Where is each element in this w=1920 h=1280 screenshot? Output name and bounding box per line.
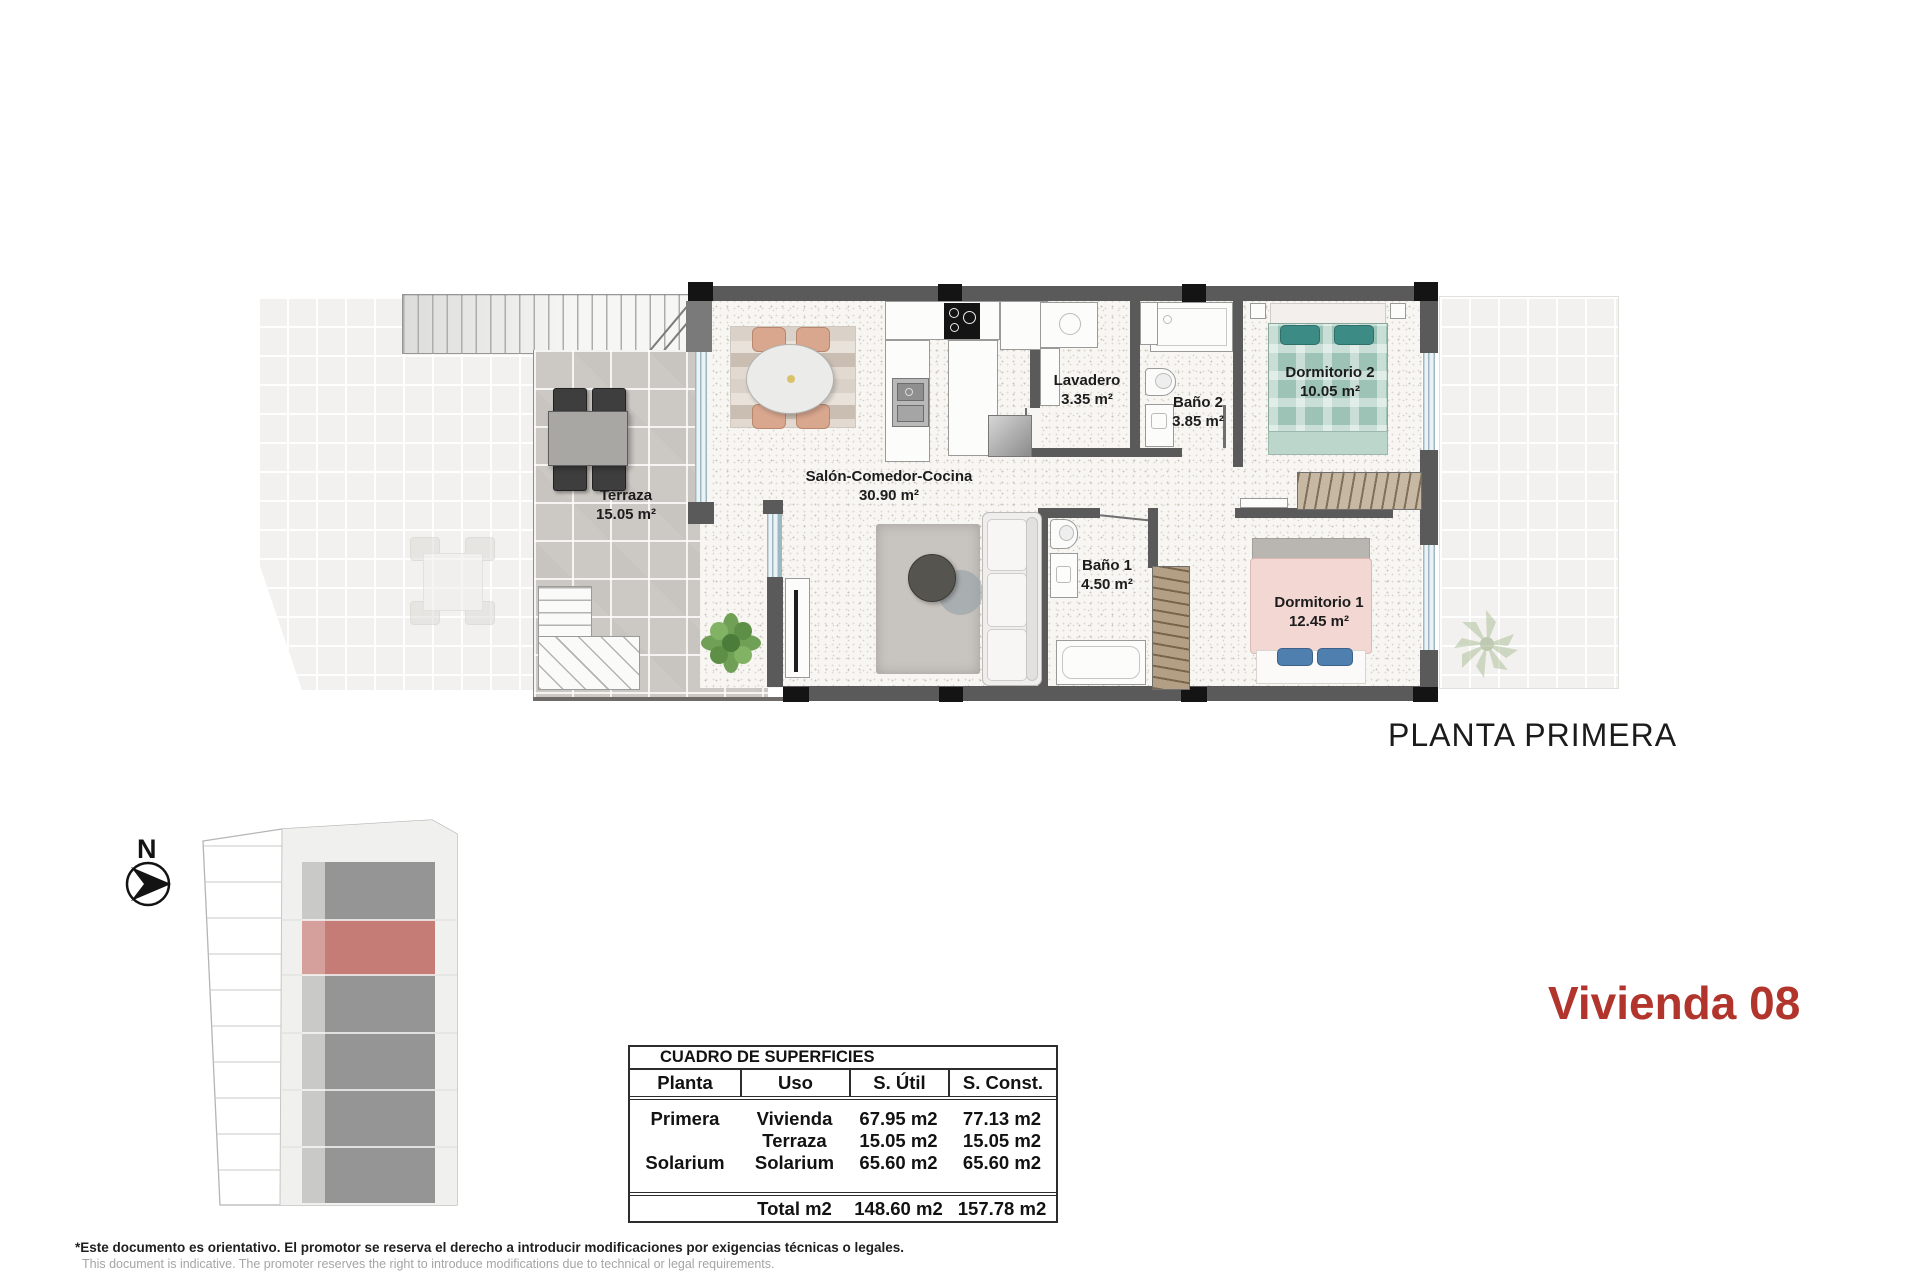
wall-top (688, 286, 1438, 301)
room-name: Baño 2 (1172, 393, 1224, 412)
window-salon (695, 352, 707, 502)
cell-util: 65.60 m2 (849, 1152, 948, 1174)
surface-table-body: Primera Vivienda 67.95 m2 77.13 m2 Terra… (630, 1100, 1056, 1196)
room-label-bano2: Baño 2 3.85 m² (1172, 393, 1224, 431)
room-label-lavadero: Lavadero 3.35 m² (1054, 371, 1121, 409)
cell-uso: Vivienda (740, 1108, 849, 1130)
wall-tv (767, 577, 783, 687)
cell-const: 77.13 m2 (948, 1108, 1056, 1130)
room-label-salon: Salón-Comedor-Cocina 30.90 m² (806, 467, 973, 505)
highlighted-unit (302, 920, 325, 975)
nightstand (1390, 303, 1406, 319)
window-dormitorio1 (1423, 545, 1435, 650)
disclaimer-en: This document is indicative. The promote… (82, 1257, 774, 1271)
plan-title: PLANTA PRIMERA (1388, 717, 1677, 754)
window-dormitorio2 (1423, 353, 1435, 450)
wall-bano1-right (1148, 508, 1158, 568)
door-glass-entry (767, 510, 782, 577)
table-row: Primera Vivienda 67.95 m2 77.13 m2 (630, 1108, 1056, 1130)
room-label-bano1: Baño 1 4.50 m² (1081, 556, 1133, 594)
vanity (1050, 553, 1078, 598)
cell-util: 67.95 m2 (849, 1108, 948, 1130)
wall-pier-2 (763, 500, 783, 514)
col-header-sconst: S. Const. (948, 1070, 1056, 1096)
surface-table-title: CUADRO DE SUPERFICIES (630, 1047, 1056, 1070)
room-area: 15.05 m² (596, 505, 656, 524)
bathtub (1056, 640, 1146, 685)
highlighted-unit (325, 920, 435, 975)
wall-bano2-right (1233, 301, 1243, 467)
wall-lavadero-bano2 (1130, 301, 1140, 450)
kitchen-sink (892, 378, 929, 427)
room-name: Dormitorio 1 (1274, 593, 1363, 612)
terrace-chair (553, 464, 587, 491)
door-leaf-dorm (1240, 498, 1288, 508)
site-plan: N (0, 0, 520, 1240)
stair-side-wall (686, 301, 712, 352)
room-area: 3.35 m² (1054, 390, 1121, 409)
vanity (1145, 404, 1174, 447)
terrace-table (548, 411, 628, 466)
total-util: 148.60 m2 (849, 1196, 948, 1221)
coffee-table (908, 554, 956, 602)
column (1182, 284, 1206, 302)
wardrobe-dormitorio2 (1297, 472, 1422, 510)
cell-const: 65.60 m2 (948, 1152, 1056, 1174)
cell-planta: Primera (630, 1108, 740, 1130)
toilet (1050, 519, 1078, 549)
toilet (1145, 368, 1176, 396)
total-const: 157.78 m2 (948, 1196, 1056, 1221)
column (938, 284, 962, 302)
cell-const: 15.05 m2 (948, 1130, 1056, 1152)
plant-icon (700, 612, 762, 674)
room-area: 3.85 m² (1172, 412, 1224, 431)
north-arrow-icon (127, 863, 171, 905)
room-label-terraza: Terraza 15.05 m² (596, 486, 656, 524)
cabinet (1140, 302, 1158, 345)
room-area: 12.45 m² (1274, 612, 1363, 631)
surface-table: CUADRO DE SUPERFICIES Planta Uso S. Útil… (628, 1045, 1058, 1223)
cell-planta (630, 1130, 740, 1152)
plan-sheet: Terraza 15.05 m² Salón-Comedor-Cocina 30… (0, 0, 1920, 1280)
terrace-edge (533, 697, 785, 701)
wall-right-3 (1420, 650, 1438, 688)
wall-right-1 (1420, 301, 1438, 353)
cell-uso: Solarium (740, 1152, 849, 1174)
column (688, 282, 713, 301)
surface-table-header: Planta Uso S. Útil S. Const. (630, 1070, 1056, 1100)
palm-icon (1450, 606, 1524, 682)
washer (1040, 302, 1098, 348)
column (783, 687, 809, 702)
tv (794, 590, 798, 672)
nightstand (1250, 303, 1266, 319)
surface-table-total-row: Total m2 148.60 m2 157.78 m2 (630, 1196, 1056, 1221)
shower (1150, 302, 1233, 352)
room-area: 30.90 m² (806, 486, 973, 505)
room-area: 10.05 m² (1285, 382, 1374, 401)
room-label-dormitorio1: Dormitorio 1 12.45 m² (1274, 593, 1363, 631)
disclaimer-es: *Este documento es orientativo. El promo… (75, 1240, 904, 1255)
wall-right-2 (1420, 450, 1438, 545)
room-label-dormitorio2: Dormitorio 2 10.05 m² (1285, 363, 1374, 401)
column (1413, 687, 1438, 702)
column (939, 687, 963, 702)
cell-planta: Solarium (630, 1152, 740, 1174)
room-name: Salón-Comedor-Cocina (806, 467, 973, 486)
dining-table (746, 344, 834, 414)
stairs-lower-flight (538, 586, 592, 638)
table-row: Solarium Solarium 65.60 m2 65.60 m2 (630, 1152, 1056, 1174)
col-header-planta: Planta (630, 1070, 740, 1096)
sofa (982, 512, 1042, 686)
kitchen-counter-top (885, 301, 1000, 340)
col-header-uso: Uso (740, 1070, 849, 1096)
room-name: Lavadero (1054, 371, 1121, 390)
cell-util: 15.05 m2 (849, 1130, 948, 1152)
column (1414, 282, 1438, 301)
north-label: N (137, 834, 157, 864)
wall-bottom (783, 686, 1438, 701)
wall-pier-1 (688, 502, 714, 524)
col-header-sutil: S. Útil (849, 1070, 948, 1096)
unit-title: Vivienda 08 (1548, 976, 1800, 1030)
dishwasher (988, 415, 1032, 457)
cooktop (944, 303, 980, 339)
total-label: Total m2 (740, 1196, 849, 1221)
wall-lavadero-bottom (1030, 448, 1182, 457)
room-name: Terraza (596, 486, 656, 505)
room-name: Dormitorio 2 (1285, 363, 1374, 382)
room-name: Baño 1 (1081, 556, 1133, 575)
building-mass (302, 862, 435, 1203)
room-area: 4.50 m² (1081, 575, 1133, 594)
cell-uso: Terraza (740, 1130, 849, 1152)
stairs-winder (538, 636, 640, 690)
wardrobe-dormitorio1 (1152, 566, 1190, 690)
table-row: Terraza 15.05 m2 15.05 m2 (630, 1130, 1056, 1152)
